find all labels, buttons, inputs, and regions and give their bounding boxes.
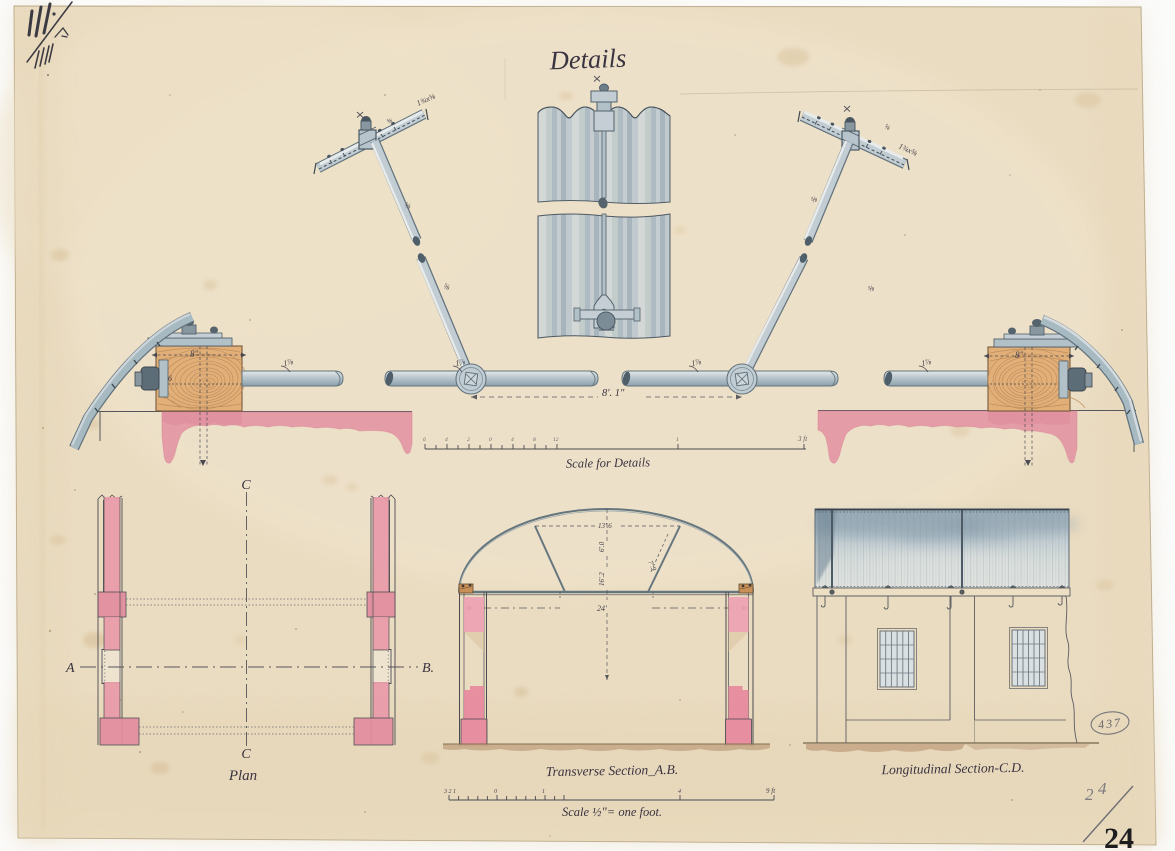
svg-text:Longitudinal Section-C.D.: Longitudinal Section-C.D. — [880, 760, 1024, 778]
svg-text:Scale for Details: Scale for Details — [566, 455, 650, 470]
svg-text:Transverse Section_A.B.: Transverse Section_A.B. — [546, 762, 679, 779]
svg-text:4: 4 — [445, 436, 448, 443]
svg-text:4: 4 — [511, 436, 514, 443]
svg-text:A: A — [65, 661, 75, 676]
svg-text:2: 2 — [1085, 785, 1094, 804]
svg-text:8'. 1": 8'. 1" — [602, 388, 625, 399]
svg-text:24: 24 — [1104, 822, 1134, 851]
svg-text:0: 0 — [489, 437, 492, 443]
svg-text:1: 1 — [542, 789, 545, 795]
svg-text:6: 6 — [423, 437, 426, 443]
svg-text:4: 4 — [1098, 779, 1107, 798]
svg-text:B.: B. — [422, 661, 434, 676]
svg-text:C: C — [241, 747, 251, 762]
svg-text:3 ft: 3 ft — [797, 435, 808, 443]
svg-text:8: 8 — [533, 437, 536, 443]
svg-text:9 ft: 9 ft — [766, 787, 776, 795]
svg-text:4: 4 — [678, 788, 681, 795]
svg-text:8": 8" — [190, 349, 199, 359]
svg-text:C: C — [241, 478, 251, 493]
svg-text:Details: Details — [548, 43, 627, 76]
svg-text:Plan: Plan — [228, 768, 257, 784]
svg-text:437: 437 — [1097, 715, 1123, 732]
svg-text:8": 8" — [1015, 350, 1024, 360]
svg-text:13'.6: 13'.6 — [598, 522, 612, 530]
svg-text:6: 6 — [168, 374, 172, 383]
svg-text:3 2 1: 3 2 1 — [443, 789, 456, 795]
svg-text:2: 2 — [467, 437, 470, 443]
svg-text:12: 12 — [553, 437, 559, 443]
svg-text:16'.2: 16'.2 — [598, 572, 606, 586]
svg-text:24': 24' — [597, 604, 607, 613]
svg-text:0: 0 — [494, 789, 497, 795]
svg-text:1: 1 — [676, 437, 679, 443]
svg-text:6'.0: 6'.0 — [598, 541, 606, 552]
svg-text:Scale ½"= one foot.: Scale ½"= one foot. — [562, 805, 662, 819]
